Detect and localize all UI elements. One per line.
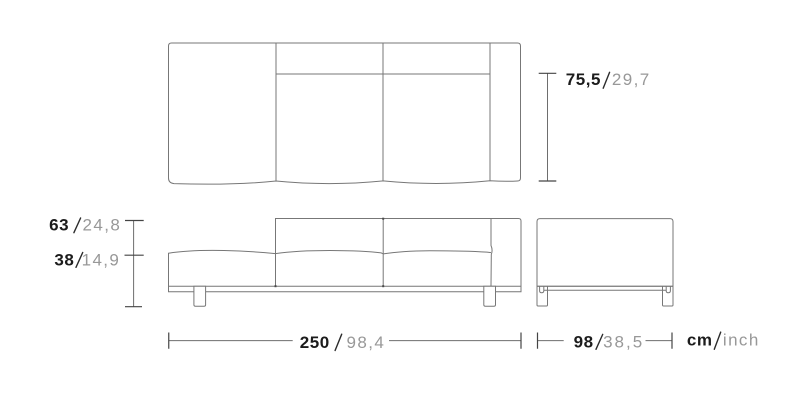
- svg-text:98,4: 98,4: [347, 333, 386, 352]
- svg-text:250: 250: [300, 333, 330, 352]
- svg-text:63: 63: [49, 216, 69, 235]
- svg-text:29,7: 29,7: [612, 70, 651, 89]
- svg-text:14,9: 14,9: [82, 250, 121, 269]
- svg-text:38,5: 38,5: [603, 332, 644, 351]
- svg-text:24,8: 24,8: [83, 216, 122, 235]
- svg-text:cm: cm: [687, 331, 713, 350]
- svg-text:75,5: 75,5: [566, 70, 601, 89]
- svg-text:38: 38: [54, 250, 74, 269]
- svg-text:inch: inch: [723, 331, 760, 350]
- svg-text:98: 98: [574, 332, 594, 351]
